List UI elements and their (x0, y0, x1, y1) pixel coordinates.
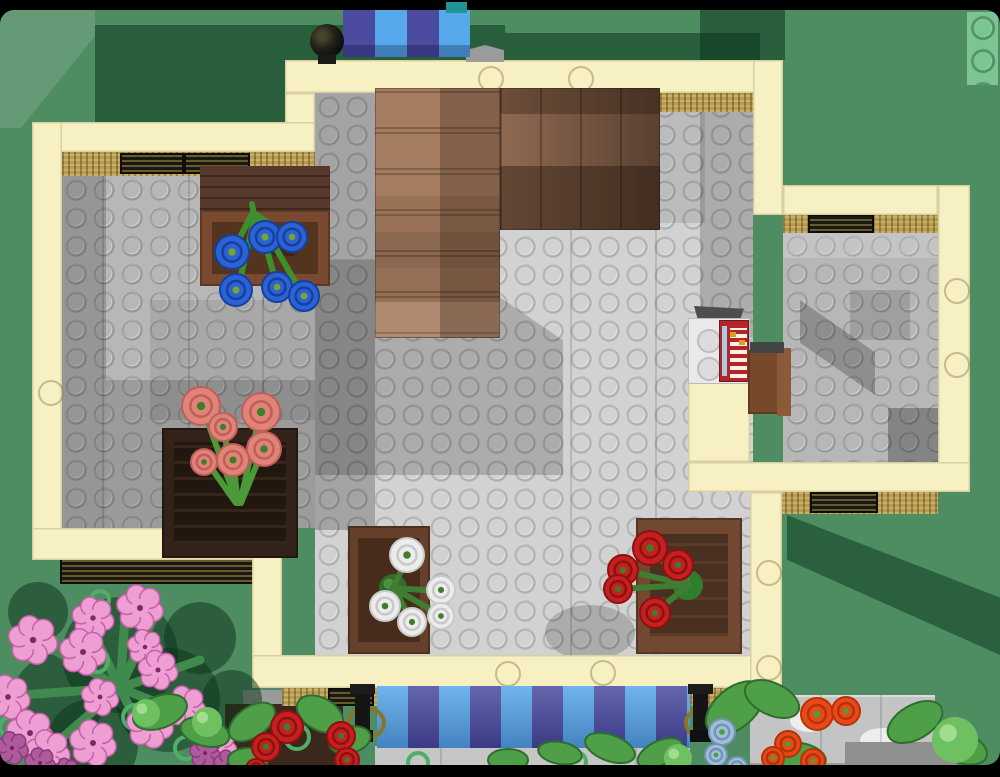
bush-ground-shadow (8, 582, 262, 765)
floor-right-corner-shadow (888, 408, 938, 462)
street-lamp-cap (350, 684, 375, 694)
white-rose-crate-recess (358, 538, 420, 642)
top-awning-shade (343, 45, 470, 57)
purple-blossoms (0, 732, 242, 765)
building-shadow-top-4 (700, 10, 785, 60)
wall-right-wing-top (783, 185, 938, 215)
bottom-awning (377, 686, 690, 748)
stone-wall-patch (905, 705, 935, 723)
building-shadow-right (787, 515, 1000, 655)
register-receipt-strip (722, 326, 727, 376)
table-top (200, 166, 330, 210)
counter-base (688, 382, 750, 462)
crate-handle (222, 238, 250, 256)
red-rose-crate-recess (650, 534, 728, 636)
floor-left-shadow (150, 300, 315, 420)
sill-top-main (660, 93, 753, 112)
grass-baseplate (0, 10, 1000, 765)
ball-lamp (310, 24, 344, 58)
street-lamp-foot (690, 730, 711, 742)
sidewalk-seam (440, 746, 442, 765)
sidewalk-seam (570, 746, 572, 765)
render-frame (0, 0, 1000, 777)
floor-seam (102, 176, 104, 528)
wall-stud (756, 560, 782, 586)
wall-right-outer (938, 185, 970, 492)
stair-top-edge (500, 88, 660, 114)
stair-side-shadow (440, 88, 500, 338)
bush-branches (20, 602, 200, 745)
wall-left-wing-top (32, 122, 315, 152)
wall-stud (944, 352, 970, 378)
sidewalk (375, 746, 690, 765)
grass-highlight-top-left (0, 10, 95, 128)
wall-stud (756, 655, 782, 681)
stone-wall-patch (790, 710, 830, 732)
wall-right-wing-bottom (688, 462, 970, 492)
window-slot (122, 155, 182, 172)
floor-main-shadow-right (700, 93, 753, 338)
sidewalk-seam (505, 746, 507, 765)
street-lamp-cap (688, 684, 713, 694)
stair-bottom-steps (500, 166, 660, 230)
register-key-yellow (739, 340, 745, 345)
register-stud (697, 329, 721, 353)
floor-main-shadow-stairs (660, 93, 705, 223)
window-slot (812, 494, 876, 511)
wall-stud (590, 660, 616, 686)
floor-right-shadow (850, 290, 910, 340)
crate-handle (270, 238, 298, 256)
grass-light-corner (967, 12, 998, 85)
pink-rose-crate-recess (174, 442, 286, 544)
register-stud (697, 357, 721, 381)
wall-stud (944, 278, 970, 304)
ball-lamp-base (318, 54, 336, 64)
floor-main-shadow-blob (545, 605, 635, 660)
sill-bottom-left-windows (62, 560, 252, 582)
wall-left-outer (32, 122, 62, 560)
dark-planter (225, 704, 343, 765)
wall-stud (38, 380, 64, 406)
stool-top-bracket (750, 342, 784, 353)
stone-wall-seam (820, 695, 822, 765)
floor-right-light (783, 232, 938, 258)
floor-left-shadow (62, 176, 106, 528)
stool-back (777, 348, 791, 416)
wall-stud (495, 661, 521, 687)
wall-right-upper (753, 60, 783, 215)
street-lamp-foot (352, 730, 373, 742)
pink-blossoms (0, 585, 237, 765)
teal-brick (446, 2, 467, 13)
sidewalk-seam (635, 746, 637, 765)
register-key-yellow (730, 332, 736, 337)
window-slot (810, 216, 872, 231)
stone-wall-inner (845, 742, 957, 765)
